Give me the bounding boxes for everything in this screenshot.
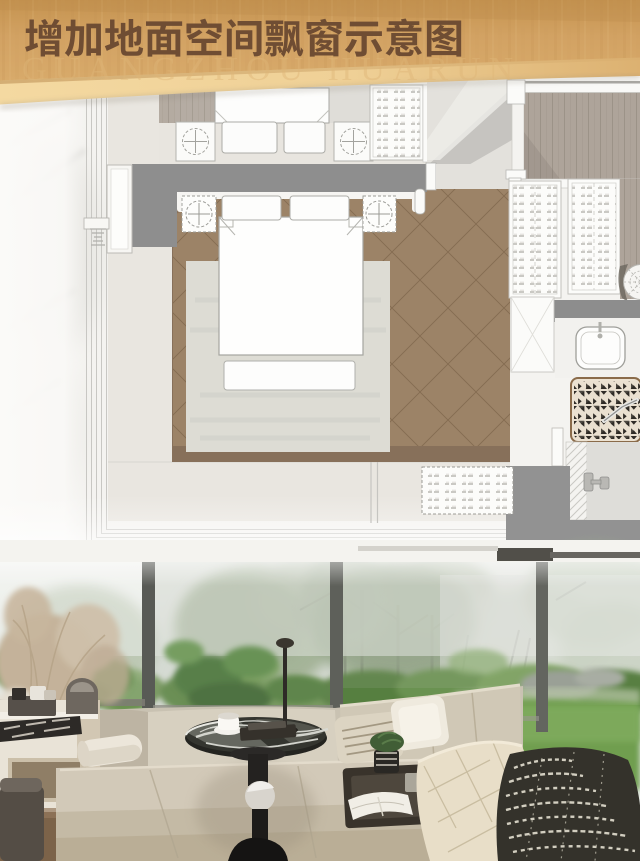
svg-text:GUANGZHOU HUARUN: GUANGZHOU HUARUN (22, 51, 521, 88)
